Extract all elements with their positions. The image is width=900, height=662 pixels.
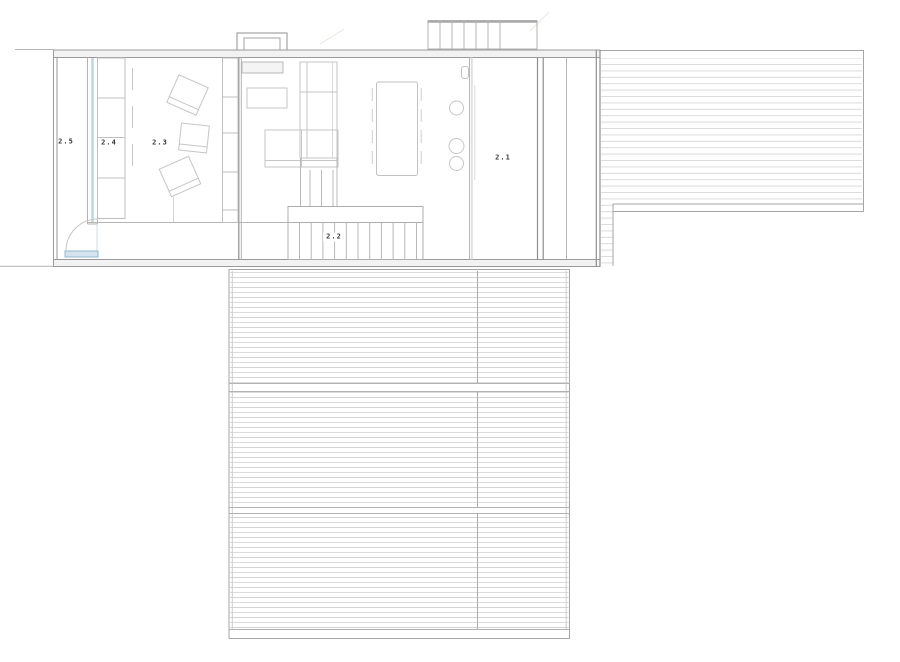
room-label-2-5: 2.5 <box>58 139 74 146</box>
room-label-2-2: 2.2 <box>323 233 345 242</box>
right-deck <box>600 51 864 267</box>
floor-plan-svg <box>0 0 900 662</box>
room-label-2-3: 2.3 <box>152 140 168 147</box>
room-label-2-1: 2.1 <box>495 155 511 162</box>
roof-skylight <box>428 21 537 50</box>
shelving-right <box>223 58 239 223</box>
coffee-table <box>247 88 287 108</box>
entry-door <box>65 219 98 257</box>
room-label-2-4: 2.4 <box>101 140 117 147</box>
sofa <box>265 130 338 167</box>
bar-stools <box>449 101 464 171</box>
roof-chimney <box>237 33 287 51</box>
lower-deck <box>229 270 570 639</box>
tv-cabinet <box>242 62 283 73</box>
kitchen-sink <box>462 67 469 79</box>
floor-plan-canvas: 2.5 2.4 2.3 2.2 2.1 <box>0 0 900 662</box>
paper-crease-lines <box>320 12 549 44</box>
dining-table <box>377 82 418 176</box>
lounge-chairs <box>159 75 209 197</box>
wall-unit <box>300 62 337 158</box>
